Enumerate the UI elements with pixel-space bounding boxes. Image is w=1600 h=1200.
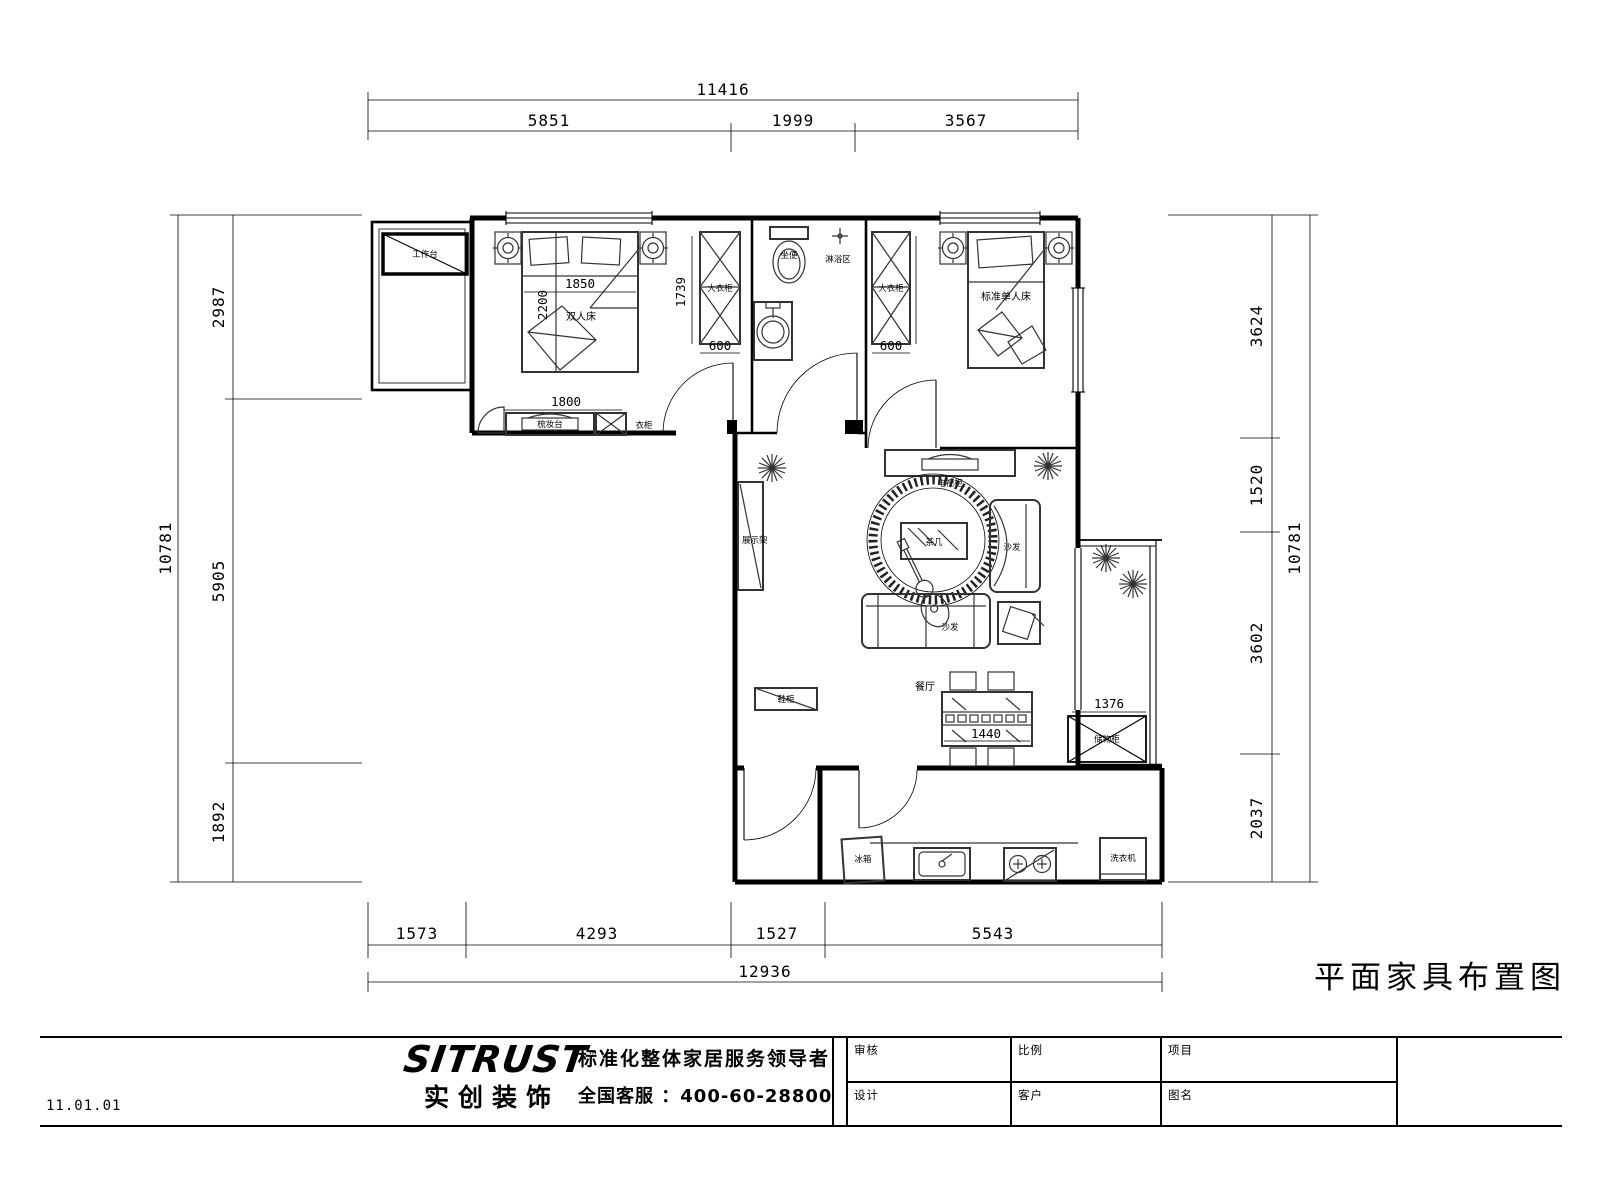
- dim-top-overall: 11416: [696, 80, 749, 99]
- cell-client: 客户: [1018, 1087, 1043, 1103]
- dim-1800: 1800: [551, 394, 581, 409]
- dim-top-seg3: 3567: [945, 111, 988, 130]
- dimension-band-left: 10781 2987 5905 1892: [156, 215, 362, 882]
- tea-table: 茶几: [901, 523, 967, 559]
- dim-1739: 1739: [673, 277, 688, 307]
- dim-bottom-overall: 12936: [738, 962, 791, 981]
- door-entry: [744, 768, 816, 840]
- interior-walls: [735, 218, 1162, 765]
- brand-logo-cn: 实创装饰: [424, 1078, 560, 1114]
- brand-logo-text: SITRUST: [401, 1038, 590, 1081]
- cell-review: 审核: [854, 1042, 879, 1058]
- dimension-band-bottom: 1573 4293 1527 5543 12936: [368, 902, 1162, 992]
- dim-left-overall: 10781: [156, 521, 175, 574]
- table-vline: [832, 1037, 834, 1125]
- washing-machine: 洗衣机: [1100, 838, 1146, 880]
- brand-slogan: 标准化整体家居服务领导者: [578, 1044, 830, 1071]
- sofa-label: 沙发: [941, 622, 959, 633]
- dim-bottom-seg4: 5543: [972, 924, 1015, 943]
- display-shelf: 展示架: [738, 482, 768, 590]
- balcony-right: 1376 储物柜: [1068, 540, 1162, 765]
- shower-zone-label: 淋浴区: [825, 254, 851, 265]
- dim-left-seg2: 5905: [209, 560, 228, 603]
- table-row-divider: [846, 1081, 1396, 1083]
- title-block-top-rule: [40, 1036, 1562, 1038]
- floor-drain-icon: [832, 228, 848, 244]
- title-block-bottom-rule: [40, 1125, 1562, 1127]
- lamp-icon: [638, 233, 668, 263]
- sofa-single: 沙发: [990, 500, 1040, 592]
- fridge-label: 冰箱: [854, 854, 872, 865]
- cell-project: 项目: [1168, 1042, 1193, 1058]
- door-bedroom1: [663, 363, 733, 433]
- dim-left-seg1: 2987: [209, 286, 228, 329]
- plant-living: [1034, 452, 1062, 480]
- doors: [663, 353, 936, 840]
- dim-2200: 2200: [535, 290, 550, 320]
- wardrobe-right-label: 大衣柜: [878, 283, 904, 294]
- lamp-icon: [1044, 233, 1074, 263]
- kitchen-sink: [914, 848, 970, 880]
- dresser-row: 1800 梳妆台 衣柜: [478, 394, 653, 435]
- dresser-label: 梳妆台: [537, 419, 563, 430]
- plant-hall: [758, 454, 786, 482]
- bedroom1: 双人床 1850 2200 大衣柜 1739 600 1800 梳妆台: [478, 232, 740, 435]
- toilet-label: 坐便: [780, 250, 798, 261]
- dim-top-seg2: 1999: [772, 111, 815, 130]
- dining-chair: [988, 672, 1014, 690]
- wardrobe-right: 大衣柜 600: [872, 232, 916, 353]
- dining-chair: [950, 748, 976, 766]
- dimension-band-top: 11416 5851 1999 3567: [368, 80, 1078, 152]
- shoe-cabinet: 鞋柜: [755, 688, 817, 710]
- dim-right-seg1: 3624: [1247, 305, 1266, 348]
- dim-left-seg3: 1892: [209, 801, 228, 844]
- fridge: 冰箱: [842, 837, 885, 884]
- wardrobe-left: 大衣柜 1739 600: [673, 232, 740, 353]
- dining-area: 餐厅 1440: [915, 672, 1032, 766]
- date-code: 11.01.01: [46, 1098, 121, 1114]
- gas-stove: [1004, 848, 1056, 881]
- shoe-cabinet-label: 鞋柜: [777, 694, 795, 705]
- cell-scale: 比例: [1018, 1042, 1043, 1058]
- washbasin: [754, 302, 792, 360]
- window-bedroom2-side: [1071, 288, 1085, 392]
- dim-bottom-seg2: 4293: [576, 924, 619, 943]
- cell-design: 设计: [854, 1087, 879, 1103]
- dining-chair: [988, 748, 1014, 766]
- bathroom: 坐便 淋浴区: [754, 227, 851, 360]
- dining-chair: [950, 672, 976, 690]
- guitar: [889, 535, 954, 632]
- washer-label: 洗衣机: [1110, 853, 1136, 864]
- dim-1850: 1850: [565, 276, 595, 291]
- fan-plant: [478, 407, 504, 433]
- wardrobe-left-label: 大衣柜: [707, 283, 733, 294]
- lamp-icon: [938, 233, 968, 263]
- sofa-single-label: 沙发: [1003, 542, 1021, 553]
- plant-balcony-2: [1119, 570, 1147, 598]
- display-shelf-label: 展示架: [742, 536, 768, 546]
- dim-600-right: 600: [880, 338, 903, 353]
- toilet: 坐便: [770, 227, 808, 283]
- dim-right-overall: 10781: [1285, 521, 1304, 574]
- dining-table: 1440: [942, 692, 1032, 746]
- floor-plan-sheet: 11416 5851 1999 3567 10781 2987 5905 189…: [0, 0, 1600, 1200]
- kitchen: 冰箱 洗衣机: [842, 837, 1146, 884]
- sofa-three-seat: 沙发: [862, 594, 990, 648]
- living-room: 电视柜 茶几 沙发: [738, 450, 1062, 710]
- balcony-sliding-door: [1075, 548, 1081, 710]
- double-bed: 双人床 1850 2200: [522, 232, 638, 372]
- door-kitchen: [859, 770, 917, 828]
- window-bedroom2: [940, 211, 1040, 225]
- cell-drawing-name: 图名: [1168, 1087, 1193, 1103]
- single-bed-label: 标准单人床: [981, 290, 1031, 303]
- closet-label: 衣柜: [635, 420, 653, 431]
- single-bed: 标准单人床: [968, 232, 1046, 368]
- dim-bottom-seg3: 1527: [756, 924, 799, 943]
- dim-right-seg4: 2037: [1247, 797, 1266, 840]
- dim-1376: 1376: [1094, 696, 1124, 711]
- dimension-band-right: 3624 1520 3602 2037 10781: [1168, 215, 1318, 882]
- side-table: [998, 602, 1044, 644]
- double-bed-label: 双人床: [566, 310, 596, 323]
- table-vline: [1396, 1037, 1398, 1125]
- dim-right-seg3: 3602: [1247, 622, 1266, 665]
- dim-right-seg2: 1520: [1247, 464, 1266, 507]
- lamp-icon: [493, 233, 523, 263]
- balcony-cabinet-label: 工作台: [412, 249, 438, 260]
- balcony-top-left: 工作台: [372, 222, 472, 390]
- dim-1440: 1440: [971, 726, 1001, 741]
- dining-room-label: 餐厅: [915, 680, 935, 693]
- dim-bottom-seg1: 1573: [396, 924, 439, 943]
- door-bedroom2: [868, 380, 936, 448]
- bedroom2: 大衣柜 600 标准单人床: [872, 232, 1074, 368]
- dim-top-seg1: 5851: [528, 111, 571, 130]
- window-bedroom1: [506, 211, 652, 225]
- drawing-title: 平面家具布置图: [1270, 952, 1566, 997]
- tea-table-label: 茶几: [925, 537, 943, 548]
- dim-600-left: 600: [709, 338, 732, 353]
- plant-balcony-1: [1092, 544, 1120, 572]
- brand-logo: SITRUST™: [401, 1038, 601, 1081]
- plan-drawing: 11416 5851 1999 3567 10781 2987 5905 189…: [0, 0, 1600, 1200]
- storage-cabinet-label: 储物柜: [1094, 734, 1120, 745]
- brand-hotline: 全国客服 ：400-60-28800: [578, 1082, 832, 1108]
